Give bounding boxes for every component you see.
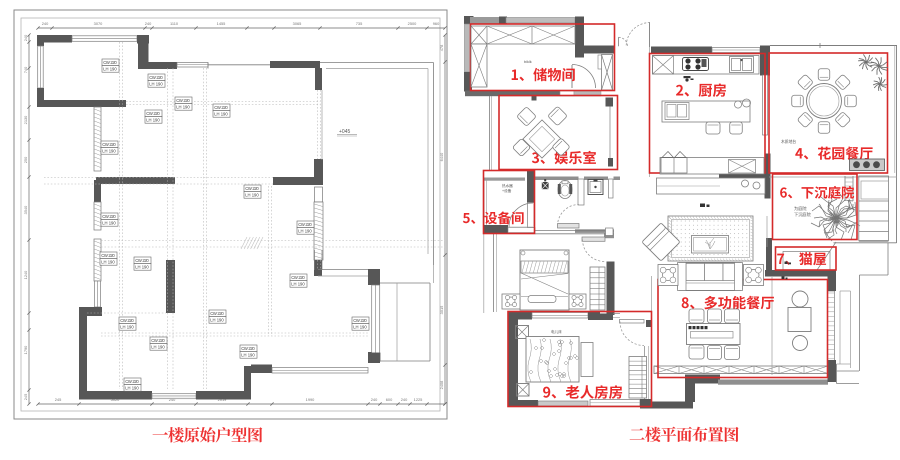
svg-text:1790: 1790 [23,345,28,354]
svg-text:600: 600 [386,397,393,402]
svg-text:1990: 1990 [306,397,315,402]
svg-text:240: 240 [371,397,378,402]
svg-text:240: 240 [23,34,28,41]
svg-text:CW 220: CW 220 [146,111,160,116]
svg-text:CW 220: CW 220 [102,142,116,147]
svg-text:CW 220: CW 220 [241,346,255,351]
svg-text:245: 245 [23,394,28,401]
svg-text:740: 740 [23,66,28,73]
svg-text:240: 240 [42,21,49,26]
svg-text:+045: +045 [339,129,350,135]
svg-text:为庭院: 为庭院 [794,205,807,212]
svg-text:LH 190: LH 190 [245,193,259,198]
svg-text:LH 190: LH 190 [120,325,134,330]
svg-text:1110: 1110 [170,21,179,26]
svg-text:250: 250 [23,156,28,163]
svg-text:245: 245 [55,397,62,402]
svg-text:CW 220: CW 220 [135,258,149,263]
svg-text:热水器: 热水器 [502,183,513,188]
svg-text:CW 220: CW 220 [101,253,115,258]
svg-text:2408: 2408 [439,381,444,390]
svg-text:下沉庭院: 下沉庭院 [794,211,812,218]
svg-text:3540: 3540 [23,205,28,214]
svg-text:CW 220: CW 220 [353,318,367,323]
svg-text:6440: 6440 [439,152,444,161]
svg-text:CW 220: CW 220 [214,105,228,110]
svg-text:LH 190: LH 190 [125,386,139,391]
svg-text:LH 190: LH 190 [103,67,117,72]
svg-text:1225: 1225 [414,397,423,402]
svg-text:LH 190: LH 190 [135,265,149,270]
svg-text:LH 190: LH 190 [149,82,163,87]
svg-text:LH 190: LH 190 [176,105,190,110]
svg-text:LH 190: LH 190 [214,112,228,117]
svg-text:CW 220: CW 220 [210,311,224,316]
svg-text:电儿床: 电儿床 [551,329,562,334]
svg-text:biklk: biklk [524,60,532,64]
svg-text:LH 190: LH 190 [151,345,165,350]
svg-text:CW 220: CW 220 [176,98,190,103]
svg-text:LH 190: LH 190 [101,260,115,265]
svg-text:LH 190: LH 190 [298,229,312,234]
svg-text:2130: 2130 [23,115,28,124]
svg-text:LH 190: LH 190 [102,149,116,154]
svg-text:CW 220: CW 220 [291,275,305,280]
svg-text:LH 190: LH 190 [102,221,116,226]
svg-text:240: 240 [401,397,408,402]
svg-text:2500: 2500 [408,21,417,26]
svg-text:1240: 1240 [23,270,28,279]
svg-text:LH 190: LH 190 [210,318,224,323]
svg-text:240: 240 [145,21,152,26]
svg-text:LH 190: LH 190 [291,282,305,287]
svg-text:+设备: +设备 [502,188,512,193]
svg-text:478: 478 [439,45,444,52]
svg-text:CW 220: CW 220 [120,318,134,323]
svg-text:3065: 3065 [293,21,302,26]
svg-text:LH 190: LH 190 [146,118,160,123]
svg-text:LH 190: LH 190 [241,353,255,358]
svg-text:3070: 3070 [94,21,103,26]
svg-text:CW 220: CW 220 [102,214,116,219]
svg-text:CW 220: CW 220 [298,222,312,227]
svg-text:CW 220: CW 220 [125,379,139,384]
svg-text:CW 220: CW 220 [151,338,165,343]
svg-text:木质地台: 木质地台 [781,139,796,144]
svg-text:CW 220: CW 220 [149,75,163,80]
svg-text:CW 220: CW 220 [245,186,259,191]
svg-text:1455: 1455 [217,21,226,26]
svg-text:3015: 3015 [439,306,444,315]
svg-text:735: 735 [356,21,363,26]
svg-text:CW 220: CW 220 [103,60,117,65]
svg-text:960: 960 [433,21,440,26]
svg-text:LH 190: LH 190 [353,325,367,330]
